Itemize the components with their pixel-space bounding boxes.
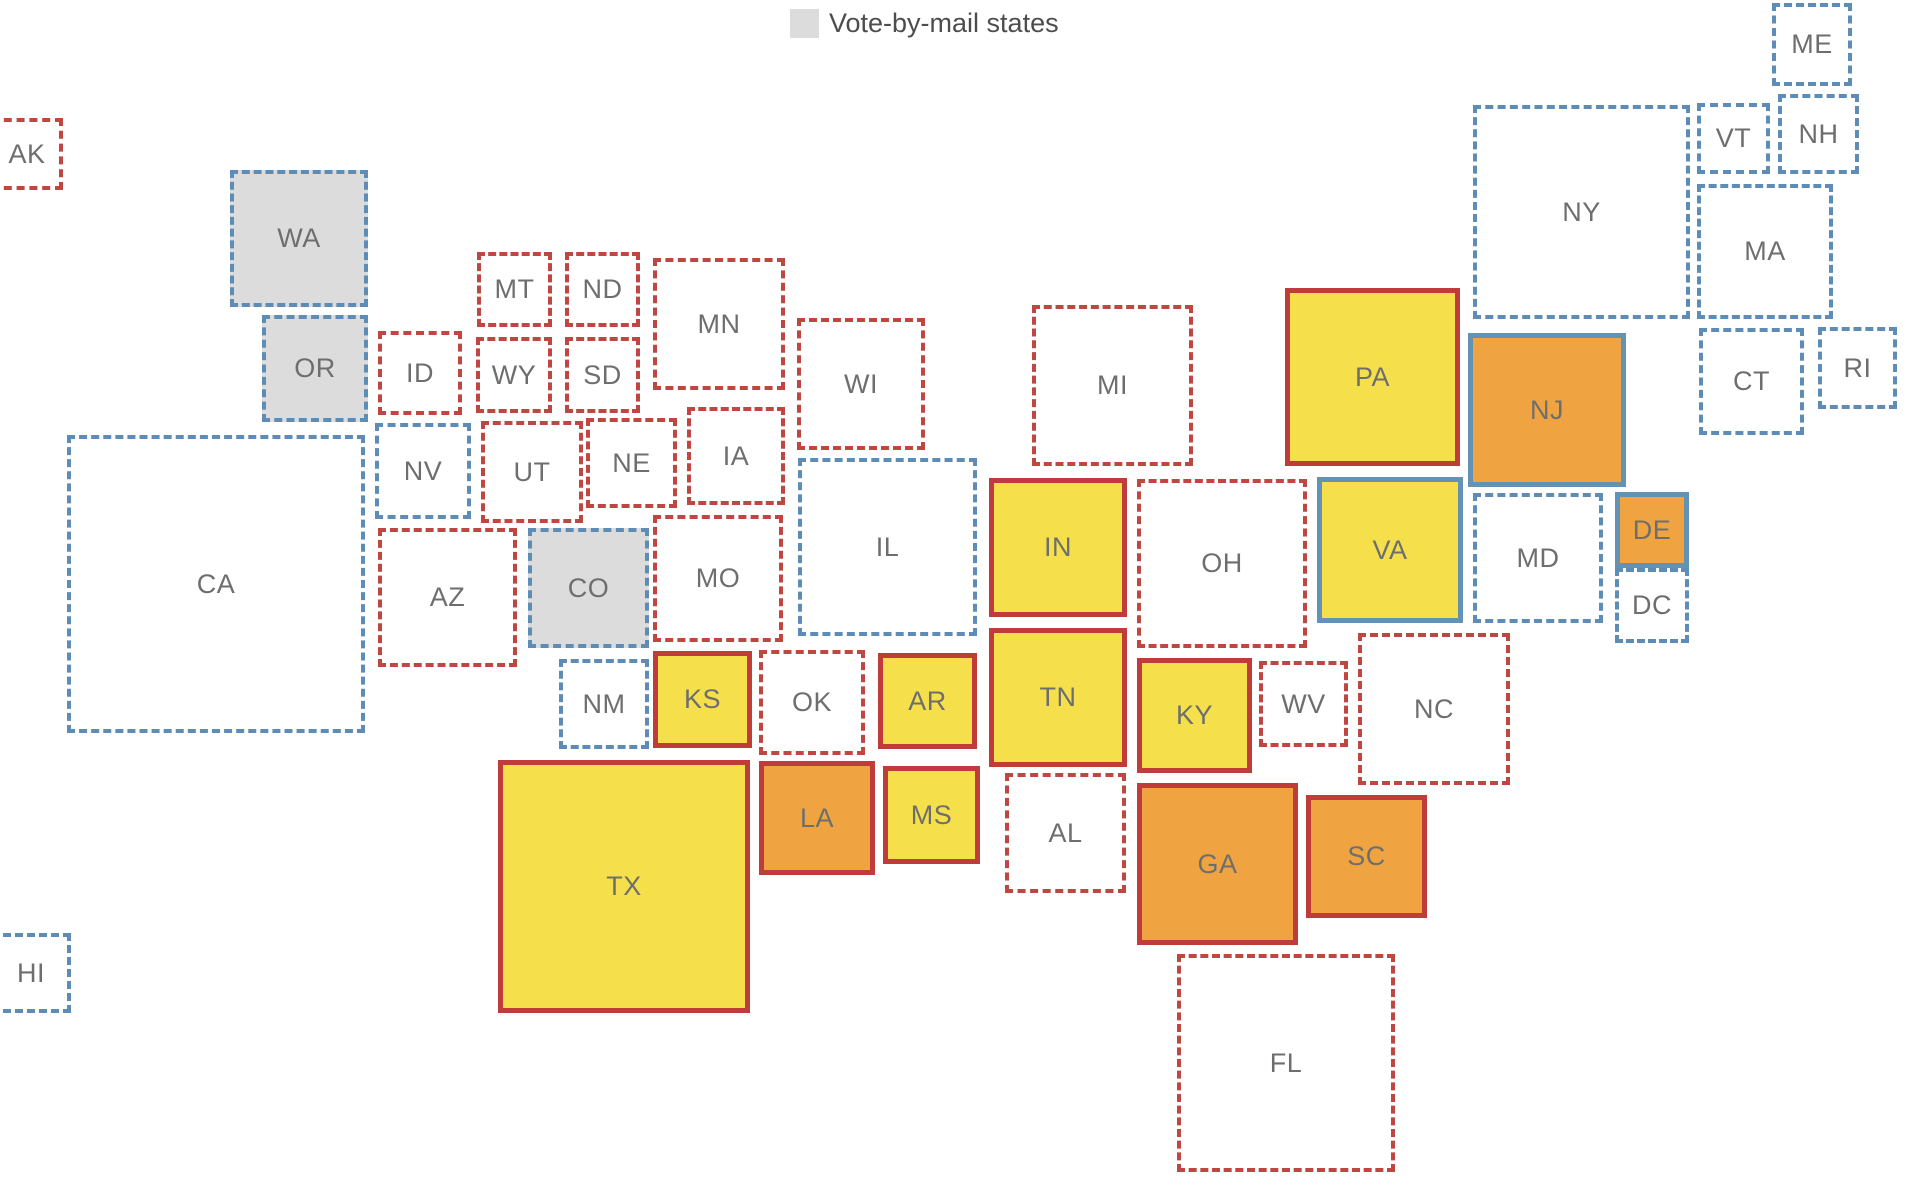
state-label-la: LA [800,803,834,834]
state-tile-ny: NY [1473,105,1690,319]
state-tile-fl: FL [1177,954,1395,1172]
state-tile-ky: KY [1137,658,1252,773]
state-label-ga: GA [1197,849,1237,880]
state-tile-wa: WA [230,170,368,307]
state-label-il: IL [876,532,900,563]
state-label-dc: DC [1632,590,1672,621]
state-tile-nj: NJ [1468,333,1626,487]
state-tile-ga: GA [1137,783,1298,945]
state-label-mt: MT [495,274,535,305]
state-tile-ca: CA [67,435,365,733]
state-tile-mt: MT [477,252,552,327]
state-label-nv: NV [404,456,443,487]
state-tile-ak: AK [0,118,63,190]
legend: Vote-by-mail states [790,6,1059,40]
state-label-ia: IA [723,441,750,472]
state-label-me: ME [1791,29,1833,60]
state-label-mi: MI [1097,370,1128,401]
state-tile-ne: NE [586,418,677,508]
state-tile-ar: AR [878,653,977,749]
state-label-nc: NC [1414,694,1454,725]
state-label-vt: VT [1716,123,1752,154]
state-tile-ma: MA [1697,184,1833,319]
state-tile-nd: ND [565,252,640,327]
state-tile-dc: DC [1615,568,1689,643]
state-label-in: IN [1044,532,1072,563]
state-tile-il: IL [798,458,977,636]
state-tile-ct: CT [1699,328,1804,435]
state-tile-hi: HI [0,933,71,1013]
state-label-ut: UT [514,457,551,488]
state-label-nj: NJ [1530,395,1564,426]
state-tile-vt: VT [1697,103,1770,174]
state-label-ca: CA [197,569,236,600]
state-tile-al: AL [1005,773,1126,893]
state-tile-oh: OH [1137,479,1307,648]
state-tile-sd: SD [565,337,640,413]
state-tile-az: AZ [378,528,517,667]
state-label-md: MD [1517,543,1560,574]
state-tile-mn: MN [653,258,785,390]
state-tile-mi: MI [1032,305,1193,466]
state-tile-ks: KS [653,651,752,748]
state-label-ms: MS [911,800,953,831]
state-tile-wi: WI [797,318,925,450]
state-label-co: CO [568,573,610,604]
state-label-ky: KY [1176,700,1213,731]
state-tile-tx: TX [498,760,750,1013]
state-label-hi: HI [17,958,45,989]
state-label-nd: ND [583,274,623,305]
state-label-nm: NM [583,689,626,720]
state-tile-or: OR [262,315,368,422]
legend-label: Vote-by-mail states [829,6,1059,40]
state-tile-nm: NM [559,659,649,749]
state-label-ak: AK [8,139,45,170]
state-tile-pa: PA [1285,288,1460,466]
state-label-ok: OK [792,687,832,718]
state-label-ar: AR [908,686,947,717]
state-tile-co: CO [528,528,649,648]
state-label-or: OR [294,353,336,384]
state-label-mn: MN [698,309,741,340]
state-label-ri: RI [1844,353,1872,384]
state-label-ne: NE [612,448,651,479]
state-label-ny: NY [1562,197,1601,228]
state-tile-la: LA [759,761,875,875]
state-label-tx: TX [606,871,642,902]
state-label-wa: WA [277,223,321,254]
state-label-sd: SD [583,360,622,391]
state-label-wi: WI [844,369,878,400]
state-tile-ms: MS [883,766,980,864]
state-label-oh: OH [1201,548,1243,579]
state-tile-sc: SC [1306,795,1427,918]
state-tile-nc: NC [1358,633,1510,785]
state-tile-me: ME [1772,3,1852,86]
state-label-wy: WY [492,360,537,391]
cartogram: Vote-by-mail states AKHIWAORCAIDNVUTAZNM… [0,0,1910,1204]
state-label-al: AL [1048,818,1082,849]
state-tile-in: IN [989,478,1127,617]
state-label-mo: MO [696,563,741,594]
state-label-tn: TN [1040,682,1077,713]
state-tile-tn: TN [989,628,1127,767]
state-label-ma: MA [1744,236,1786,267]
state-tile-id: ID [378,331,462,415]
state-tile-wy: WY [476,337,552,413]
state-tile-ri: RI [1818,327,1897,409]
state-label-de: DE [1633,515,1672,546]
state-tile-ok: OK [759,650,865,755]
state-label-ks: KS [684,684,721,715]
state-label-ct: CT [1733,366,1770,397]
state-label-pa: PA [1355,362,1390,393]
state-label-wv: WV [1281,689,1326,720]
state-tile-ut: UT [481,421,583,523]
state-label-va: VA [1372,535,1407,566]
state-tile-mo: MO [653,515,783,642]
state-label-az: AZ [430,582,466,613]
state-label-nh: NH [1799,119,1839,150]
state-label-id: ID [406,358,434,389]
state-label-sc: SC [1347,841,1386,872]
state-tile-va: VA [1317,477,1463,623]
state-tile-de: DE [1615,492,1689,568]
state-tile-md: MD [1473,493,1603,623]
state-label-fl: FL [1270,1048,1303,1079]
state-tile-wv: WV [1259,661,1348,747]
state-tile-nh: NH [1778,94,1859,174]
legend-swatch [790,9,819,38]
state-tile-nv: NV [375,423,471,519]
state-tile-ia: IA [687,407,785,505]
